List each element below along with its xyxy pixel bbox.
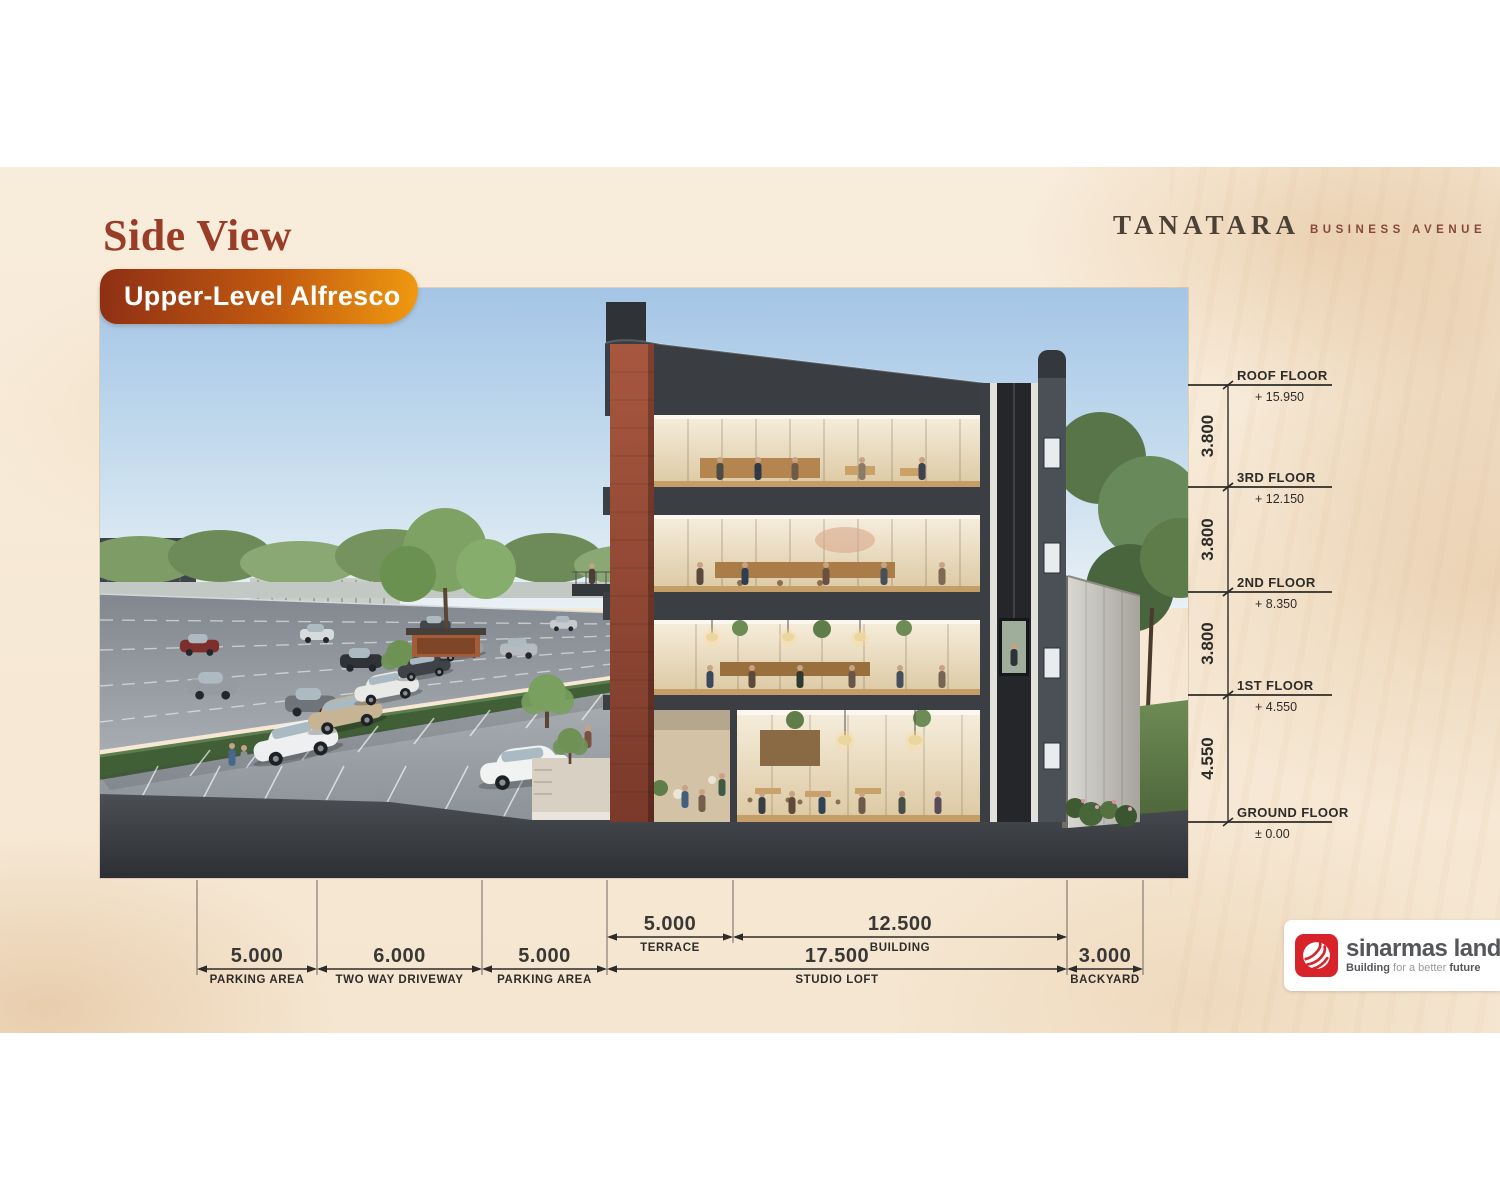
developer-tagline: Building for a better future xyxy=(1346,963,1500,975)
ground-floor-interior xyxy=(652,709,985,822)
developer-logo-card: sinarmas land Building for a better futu… xyxy=(1284,920,1500,991)
side-view-rendering xyxy=(100,288,1188,878)
tagline-bold-1: Building xyxy=(1346,962,1390,974)
floor-3-interior xyxy=(654,415,985,487)
section-badge: Upper-Level Alfresco xyxy=(100,269,418,324)
brand-logo: TANATARA BUSINESS AVENUE xyxy=(1113,212,1486,239)
floor-2-interior xyxy=(654,515,985,592)
sinarmas-land-icon xyxy=(1295,934,1338,977)
elevator-shaft xyxy=(980,383,1038,822)
brand-suffix: BUSINESS AVENUE xyxy=(1310,225,1486,240)
slide-canvas: Side View Upper-Level Alfresco TANATARA … xyxy=(0,0,1500,1200)
rendering-svg xyxy=(100,288,1188,878)
page-title: Side View xyxy=(103,210,292,261)
developer-logo-name: sinarmas land xyxy=(1346,936,1500,961)
right-facade xyxy=(1038,350,1066,822)
brand-name: TANATARA xyxy=(1113,212,1300,239)
bus-shelter xyxy=(406,628,486,657)
brick-pier xyxy=(610,344,654,822)
tagline-light: for a better xyxy=(1390,962,1449,974)
tagline-bold-2: future xyxy=(1449,962,1480,974)
backyard xyxy=(1054,412,1188,828)
section-badge-label: Upper-Level Alfresco xyxy=(124,281,401,312)
floor-1-interior xyxy=(654,620,985,695)
